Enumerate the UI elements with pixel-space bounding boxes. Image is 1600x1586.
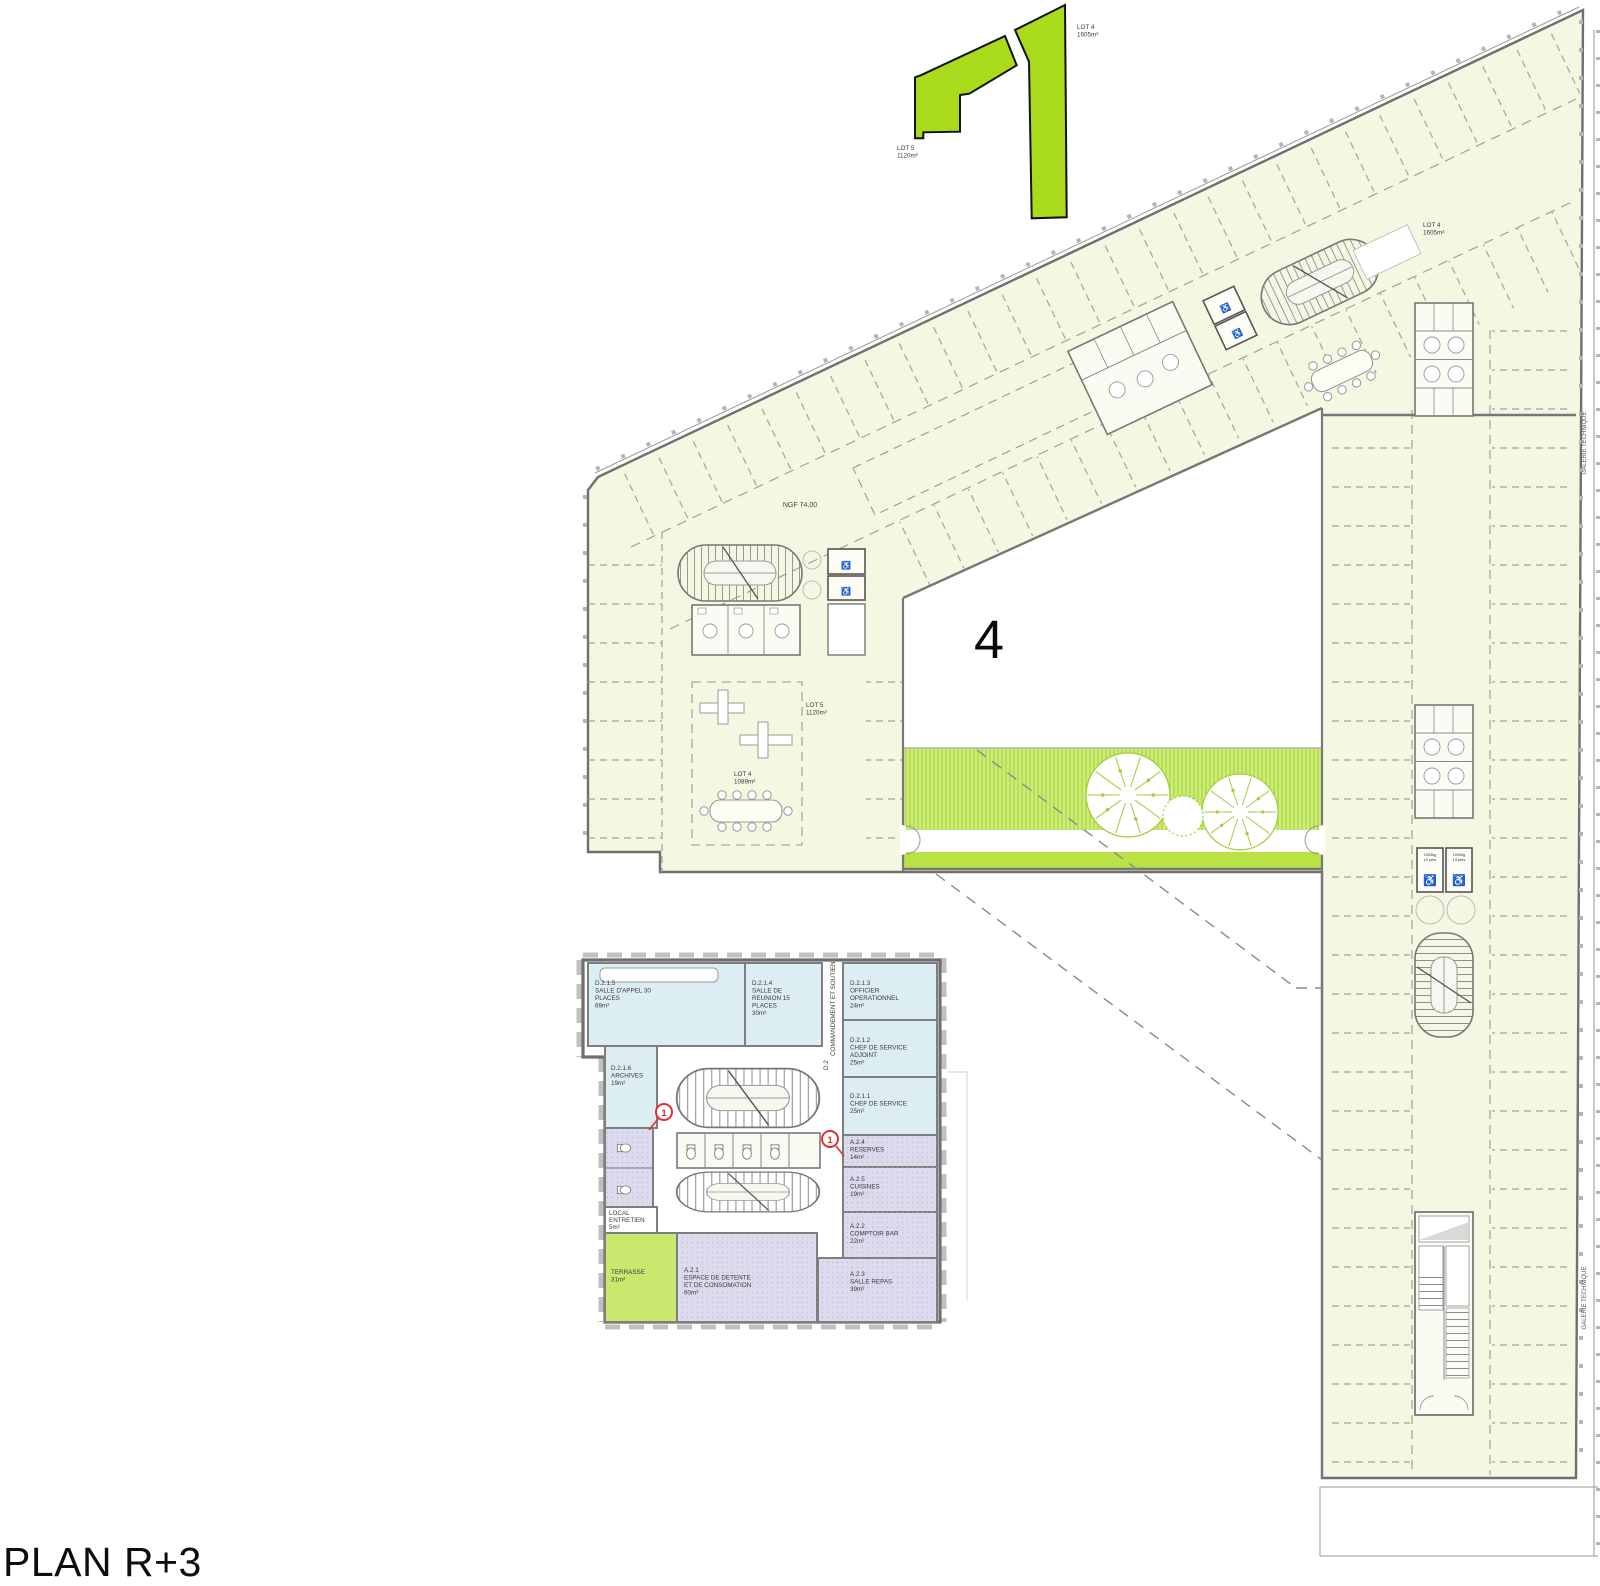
- toilet-icon: [715, 1145, 724, 1159]
- svg-text:1: 1: [661, 1108, 667, 1119]
- lot5-zone-label: LOT 5 1120m²: [806, 702, 827, 717]
- left-block-stair: [678, 545, 802, 601]
- svg-text:13 pers: 13 pers: [1424, 858, 1437, 862]
- detail-wc-row: [677, 1133, 820, 1168]
- room-wc-left: [605, 1128, 653, 1207]
- key-plan-lot5-shape: [915, 36, 1017, 138]
- right-wing-stalls-left: [1332, 418, 1410, 1475]
- ngf-label: NGF 74.00: [783, 502, 817, 509]
- toilet-icon: [743, 1145, 752, 1159]
- building-number: 4: [974, 610, 1004, 670]
- toilet-icon: [617, 1186, 630, 1194]
- detail-stair-bottom: [677, 1172, 820, 1212]
- detail-stair-top: [677, 1069, 820, 1128]
- wheelchair-icon: ♿: [841, 560, 851, 570]
- planted-strip: [903, 748, 1322, 869]
- shrub-icon: [1163, 796, 1203, 836]
- key-plan-lot4-label: LOT 4 1605m²: [1077, 24, 1098, 39]
- toilet-icon: [687, 1145, 696, 1159]
- svg-text:D.2: D.2: [823, 1060, 830, 1070]
- toilet-icon: [617, 1144, 630, 1152]
- site-lines: [1320, 1487, 1598, 1556]
- galerie-technique-label-bottom: GALERIE TECHNIQUE: [1582, 1267, 1588, 1330]
- counter-desk: [600, 968, 718, 982]
- lot4-wing-label: LOT 4 1605m²: [1423, 222, 1444, 237]
- plan-drawing: LOT 4 1605m² LOT 5 1120m²: [0, 0, 1600, 1586]
- svg-text:1000kg: 1000kg: [1453, 853, 1465, 857]
- svg-text:1000kg: 1000kg: [1424, 853, 1436, 857]
- left-block-wc: [692, 605, 800, 655]
- tree-icon: [1202, 774, 1278, 850]
- galerie-technique-label-top: GALERIE TECHNIQUE: [1582, 412, 1588, 475]
- floor-plan-sheet: LOT 4 1605m² LOT 5 1120m²: [0, 0, 1600, 1586]
- key-plan-lot4-shape: [1015, 5, 1067, 218]
- right-wing-stair-mid: [1415, 933, 1473, 1037]
- key-plan: LOT 4 1605m² LOT 5 1120m²: [897, 5, 1098, 218]
- right-wing-wc-mid: [1415, 705, 1473, 818]
- tree-icon: [1086, 753, 1170, 837]
- svg-text:1: 1: [827, 1135, 833, 1146]
- key-plan-lot5-label: LOT 5 1120m²: [897, 145, 918, 160]
- toilet-icon: [771, 1145, 780, 1159]
- wheelchair-icon: ♿: [1423, 874, 1437, 887]
- right-wing-stalls-right: [1492, 315, 1570, 1475]
- context-boundary: [948, 1072, 967, 1300]
- detail-plan: D.2.1.5 SALLE D'APPEL 30 PLACES 69m² D.2…: [579, 955, 944, 1327]
- svg-text:COMMANDEMENT ET SOUTIEN: COMMANDEMENT ET SOUTIEN: [830, 961, 837, 1056]
- lot4-zone-label: LOT 4 1089m²: [734, 771, 755, 786]
- wheelchair-icon: ♿: [1452, 874, 1466, 887]
- page-title: PLAN R+3: [3, 1539, 202, 1585]
- right-wing-stair-bottom: [1415, 1212, 1473, 1415]
- right-wing-wc-top: [1415, 303, 1473, 416]
- wheelchair-icon: ♿: [841, 586, 851, 596]
- room-d216: [605, 1046, 657, 1128]
- svg-text:13 pers: 13 pers: [1453, 858, 1466, 862]
